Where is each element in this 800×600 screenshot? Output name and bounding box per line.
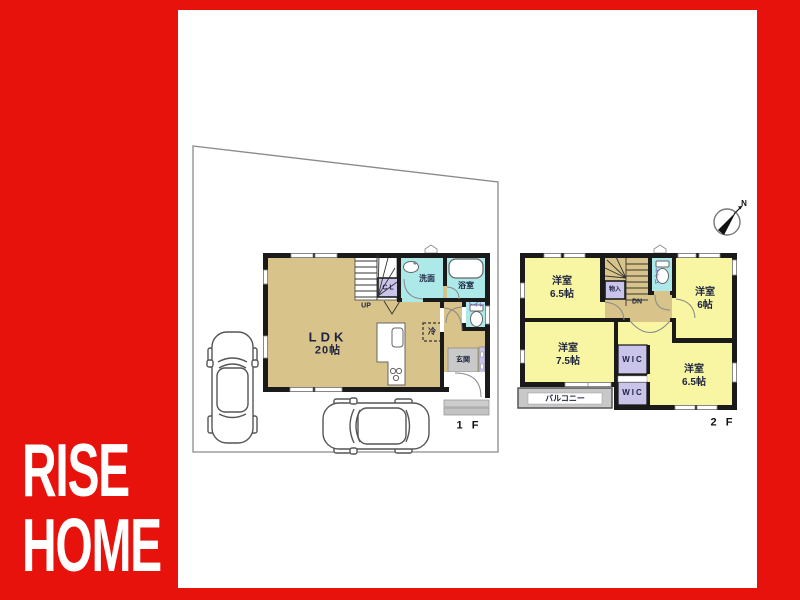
label-wic-lower: WIC (622, 389, 644, 397)
porch-step-1 (444, 400, 489, 407)
floorplan-drawing (178, 10, 757, 588)
label-room-se: 洋室 (684, 365, 704, 375)
brand-line1: RISE (22, 433, 122, 508)
compass-icon (714, 206, 742, 235)
floorplan-canvas: LDK 20帖 UP CL 洗面 浴室 トイレ 冷 玄関 1 F 洋室 6.5帖… (178, 10, 757, 588)
label-ldk: LDK (309, 331, 348, 344)
washbasin-icon (404, 262, 419, 273)
label-toilet-1f: トイレ (468, 303, 485, 309)
label-up: UP (361, 303, 371, 310)
label-entrance: 玄関 (456, 357, 470, 364)
label-room-sw-size: 7.5帖 (556, 357, 580, 367)
label-toilet-2f: トイレ (652, 268, 658, 285)
brand-line2: HOME (22, 508, 122, 583)
label-floor2: 2 F (711, 418, 736, 429)
vent-bump-1f (425, 245, 437, 253)
label-fridge: 冷 (428, 328, 436, 336)
label-room-sw: 洋室 (558, 344, 578, 354)
label-washroom: 洗面 (419, 275, 435, 283)
floor1-plan (263, 245, 490, 415)
label-bath: 浴室 (458, 282, 474, 290)
room-nw (525, 258, 600, 318)
bathtub-icon (449, 259, 483, 278)
label-wic-upper: WIC (622, 356, 644, 364)
label-floor1: 1 F (457, 421, 482, 432)
label-balcony: バルコニー (545, 395, 585, 403)
label-cl: CL (382, 285, 395, 292)
label-ldk-size: 20帖 (315, 346, 341, 357)
red-frame: RISE HOME (0, 0, 800, 600)
label-dn: DN (632, 299, 642, 306)
label-compass-north: N (741, 200, 747, 208)
label-room-ne: 洋室 (695, 288, 715, 298)
label-storage: 物入 (609, 287, 621, 293)
label-room-nw-size: 6.5帖 (550, 290, 574, 300)
car-horizontal-icon (323, 398, 429, 454)
label-room-nw: 洋室 (552, 277, 572, 287)
label-room-se-size: 6.5帖 (682, 378, 706, 388)
car-vertical-icon (207, 332, 258, 443)
label-room-ne-size: 6帖 (697, 301, 713, 311)
shoe-cabinet (479, 347, 485, 375)
brand-logo: RISE HOME (22, 433, 122, 583)
vent-bump-2f (654, 245, 666, 253)
porch-step-2 (444, 408, 489, 415)
